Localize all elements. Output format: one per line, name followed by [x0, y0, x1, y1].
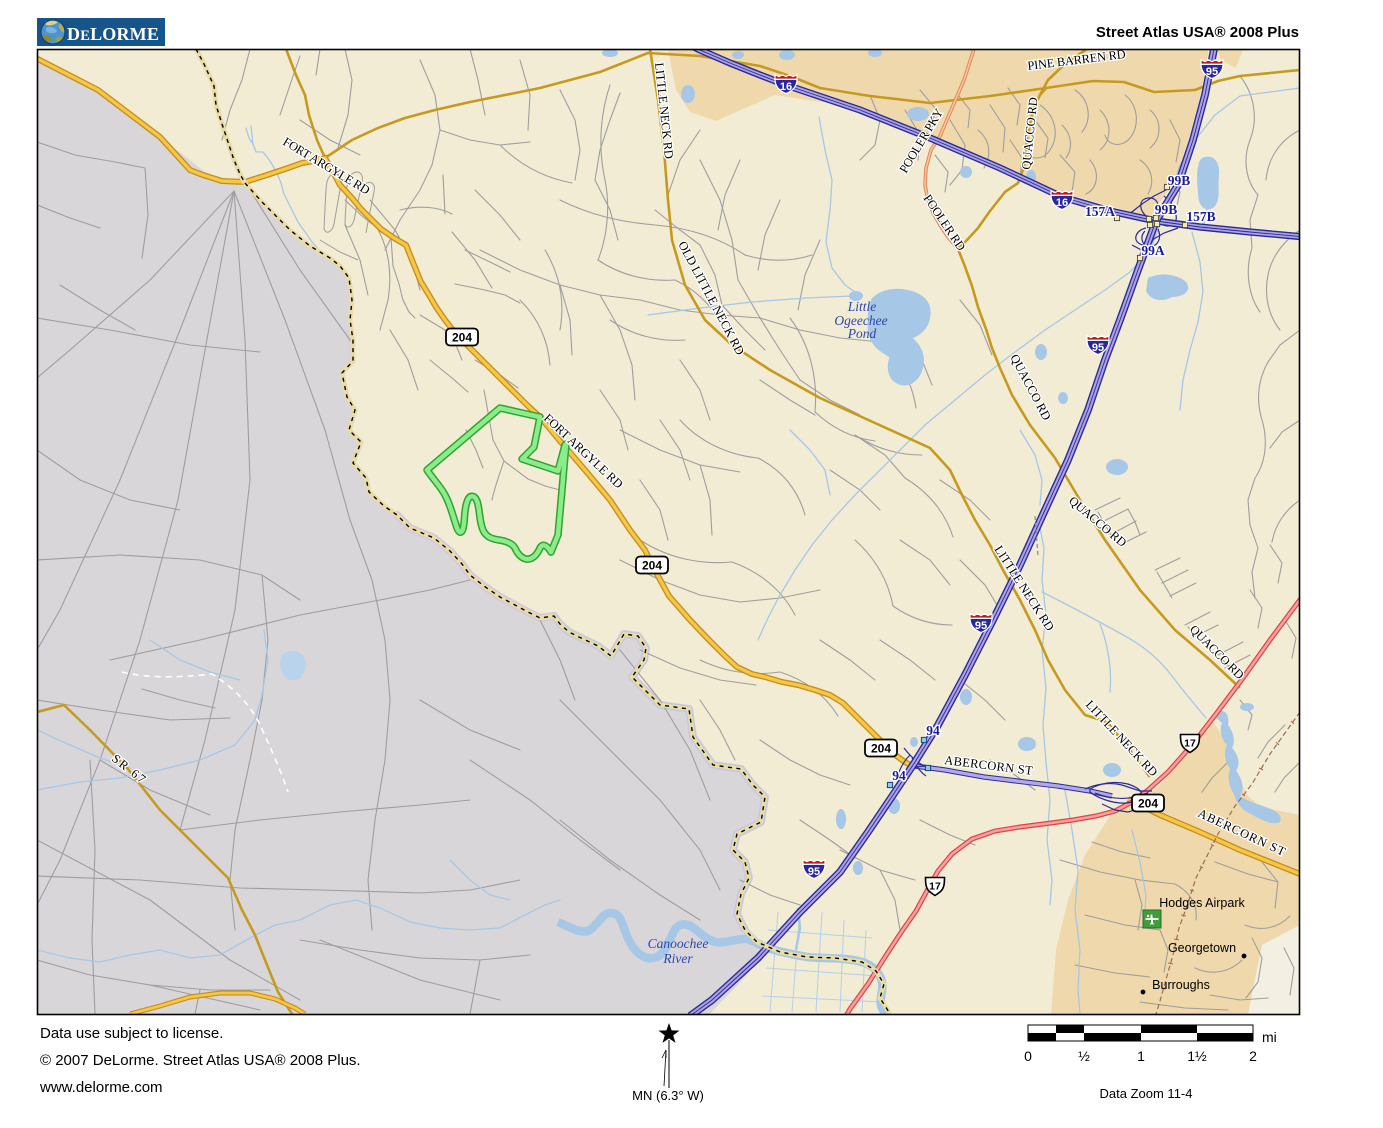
svg-text:95: 95 [1206, 66, 1218, 78]
svg-text:99B: 99B [1168, 173, 1191, 188]
svg-text:½: ½ [1078, 1048, 1090, 1064]
svg-text:16: 16 [1056, 197, 1068, 209]
svg-text:1½: 1½ [1187, 1048, 1207, 1064]
svg-text:204: 204 [871, 742, 891, 756]
svg-text:1: 1 [1137, 1048, 1145, 1064]
svg-text:204: 204 [1138, 797, 1158, 811]
svg-text:16: 16 [780, 81, 792, 93]
svg-text:17: 17 [929, 881, 941, 893]
svg-text:94: 94 [926, 723, 940, 738]
svg-text:Data use subject to license.: Data use subject to license. [40, 1025, 223, 1042]
svg-text:River: River [662, 951, 693, 966]
svg-text:95: 95 [808, 866, 820, 878]
svg-text:2: 2 [1249, 1048, 1257, 1064]
svg-text:17: 17 [1184, 738, 1196, 750]
svg-text:Canoochee: Canoochee [648, 936, 709, 951]
svg-text:95: 95 [975, 620, 987, 632]
svg-text:Street Atlas USA® 2008 Plus: Street Atlas USA® 2008 Plus [1096, 24, 1299, 41]
svg-text:204: 204 [452, 331, 472, 345]
svg-text:Georgetown: Georgetown [1168, 941, 1236, 955]
svg-text:www.delorme.com: www.delorme.com [39, 1079, 163, 1096]
svg-text:99A: 99A [1141, 243, 1165, 258]
svg-text:Little: Little [847, 299, 877, 314]
svg-text:Data Zoom 11-4: Data Zoom 11-4 [1100, 1086, 1193, 1101]
svg-text:204: 204 [642, 559, 662, 573]
svg-text:0: 0 [1024, 1048, 1032, 1064]
svg-text:mi: mi [1262, 1029, 1277, 1045]
svg-text:Hodges Airpark: Hodges Airpark [1159, 896, 1245, 910]
svg-text:Burroughs: Burroughs [1152, 978, 1210, 992]
svg-text:© 2007 DeLorme. Street Atlas U: © 2007 DeLorme. Street Atlas USA® 2008 P… [40, 1052, 361, 1069]
svg-text:MN (6.3° W): MN (6.3° W) [632, 1088, 704, 1103]
svg-text:Pond: Pond [847, 326, 877, 341]
svg-text:157A: 157A [1085, 204, 1115, 219]
svg-text:99B: 99B [1155, 202, 1178, 217]
svg-text:157B: 157B [1186, 209, 1215, 224]
svg-text:94: 94 [892, 768, 906, 783]
svg-text:95: 95 [1092, 342, 1104, 354]
